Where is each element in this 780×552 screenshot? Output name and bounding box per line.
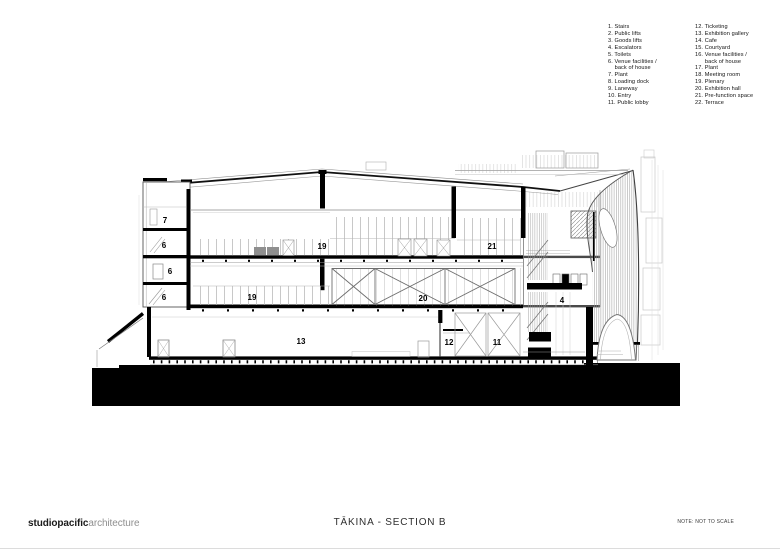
roof bbox=[143, 151, 633, 195]
room-label-12-10: 12 bbox=[445, 339, 454, 347]
room-label-6-2: 6 bbox=[168, 268, 172, 276]
section-drawing bbox=[0, 0, 780, 552]
ground-mass bbox=[92, 363, 680, 406]
drawing-sheet: 1. Stairs2. Public lifts3. Goods lifts4.… bbox=[0, 0, 780, 552]
room-label-20-7: 20 bbox=[419, 295, 428, 303]
room-label-6-1: 6 bbox=[162, 242, 166, 250]
context-structures-right bbox=[641, 150, 663, 360]
logo-light-text: architecture bbox=[88, 518, 139, 529]
sheet-title: TĀKINA - SECTION B bbox=[334, 517, 447, 528]
scale-note: NOTE: NOT TO SCALE bbox=[677, 519, 734, 525]
room-label-13-9: 13 bbox=[297, 338, 306, 346]
studio-logo: studiopacificarchitecture bbox=[28, 518, 139, 529]
room-label-11-11: 11 bbox=[493, 339, 501, 347]
left-ground-wall bbox=[97, 307, 151, 367]
room-label-4-8: 4 bbox=[560, 297, 564, 305]
level1-interior bbox=[190, 263, 523, 306]
room-label-19-6: 19 bbox=[248, 294, 257, 302]
level2-interior bbox=[193, 213, 521, 257]
room-label-21-5: 21 bbox=[488, 243, 497, 251]
room-label-6-3: 6 bbox=[162, 294, 166, 302]
sheet-bottom-edge bbox=[0, 548, 780, 549]
section-drawing-area: 7666192119204131211 bbox=[0, 0, 780, 552]
room-label-19-4: 19 bbox=[318, 243, 327, 251]
logo-bold-text: studiopacific bbox=[28, 518, 88, 529]
ground-floor-interior bbox=[152, 310, 520, 357]
room-label-7-0: 7 bbox=[163, 217, 167, 225]
